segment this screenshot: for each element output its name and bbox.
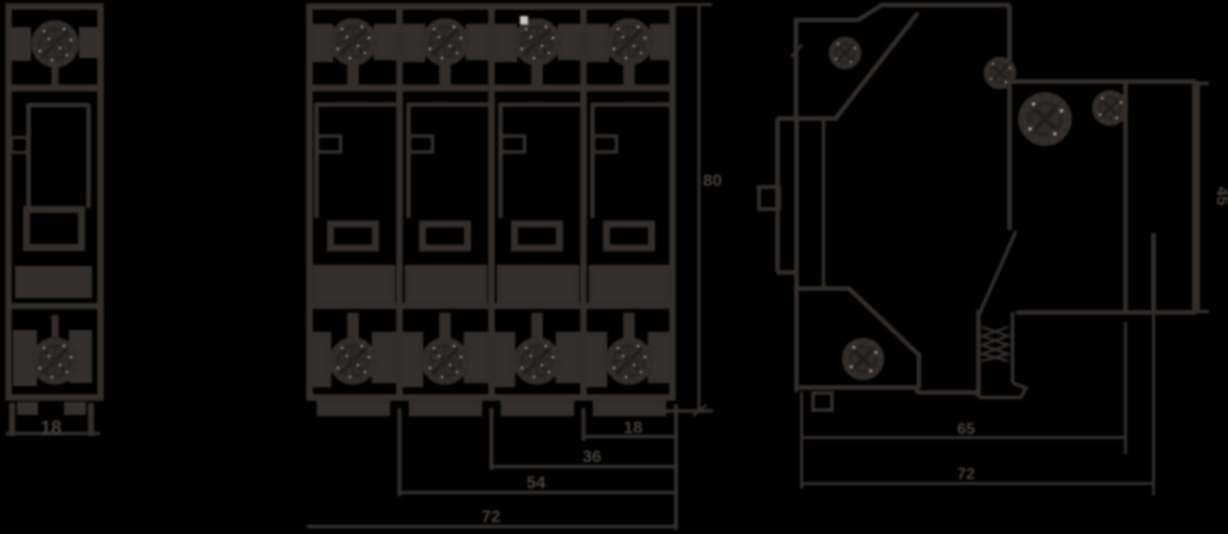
svg-text:72: 72 bbox=[957, 466, 975, 483]
svg-text:36: 36 bbox=[583, 447, 602, 466]
svg-text:18: 18 bbox=[624, 418, 643, 437]
svg-text:45: 45 bbox=[1213, 187, 1228, 206]
svg-text:65: 65 bbox=[957, 421, 975, 438]
svg-text:80: 80 bbox=[703, 171, 722, 190]
svg-text:54: 54 bbox=[527, 473, 546, 492]
svg-text:18: 18 bbox=[40, 418, 61, 439]
svg-text:72: 72 bbox=[482, 507, 501, 526]
